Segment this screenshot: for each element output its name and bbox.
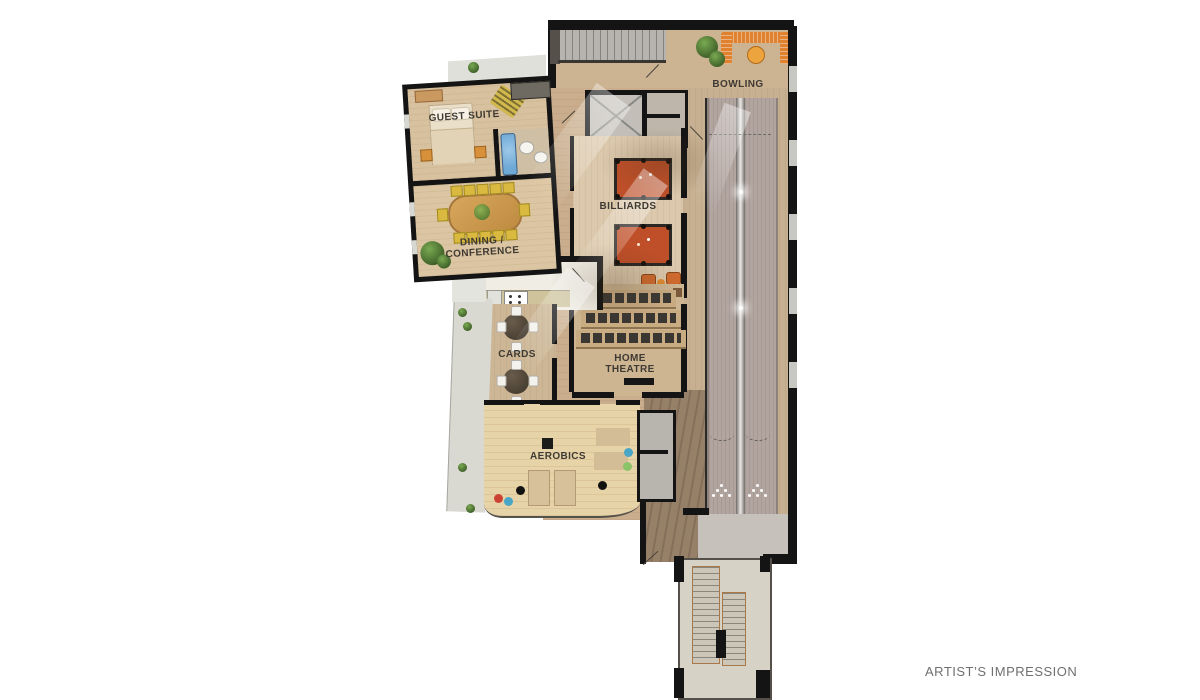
artists-impression-caption: ARTIST’S IMPRESSION <box>925 664 1077 679</box>
theatre-seat-row-3 <box>576 330 686 349</box>
billiards-wall-right-1 <box>681 128 687 198</box>
lane-walkway-divider <box>705 98 707 514</box>
bowling-pins-1 <box>720 484 723 487</box>
theatre-wall-left <box>569 296 574 392</box>
bathtub <box>500 133 518 176</box>
exercise-mat-3 <box>596 428 630 446</box>
balcony-plant-2 <box>463 322 472 331</box>
theatre-wall-bottom-1 <box>572 392 614 398</box>
kitchen-wall-right <box>597 256 603 310</box>
equipment-dot-1 <box>516 486 525 495</box>
exercise-ball-blue-1 <box>624 448 633 457</box>
aerobics-wall-top-2 <box>540 400 600 405</box>
wardrobe <box>510 81 551 100</box>
bowling-pins-2 <box>756 484 759 487</box>
window-right-4 <box>789 288 797 314</box>
exercise-ball-green <box>623 462 632 471</box>
room-label-theatre-line2: THEATRE <box>605 364 654 376</box>
billiard-table-1 <box>614 158 672 200</box>
cards-wall-right-1 <box>552 304 557 344</box>
card-chair <box>497 322 507 333</box>
window-right-2 <box>789 140 797 166</box>
dining-chair <box>505 229 518 241</box>
lane-light-2 <box>739 306 743 310</box>
lane-light-1 <box>739 190 743 194</box>
equipment-box <box>542 438 553 449</box>
window-left-2 <box>409 202 415 216</box>
theatre-seat-row-2 <box>581 310 681 329</box>
card-table-1 <box>503 314 529 340</box>
exercise-ball-blue-2 <box>504 497 513 506</box>
nightstand-left <box>420 149 433 162</box>
balcony-plant-4 <box>466 504 475 513</box>
billiard-table-2 <box>614 224 672 266</box>
corridor-wall-left <box>640 496 646 564</box>
terrace-plant <box>468 62 479 73</box>
room-label-bowling: BOWLING <box>712 79 763 91</box>
exercise-mat-2 <box>554 470 576 506</box>
dining-chair <box>463 184 476 196</box>
lane-range-arc-1 <box>710 428 734 441</box>
window-right-5 <box>789 362 797 388</box>
card-chair <box>511 360 522 370</box>
dining-chair <box>476 184 489 196</box>
utility-divider <box>639 450 668 454</box>
outer-wall-top <box>548 20 794 30</box>
elevator <box>585 90 647 142</box>
tower-corner-3 <box>756 670 770 698</box>
card-chair <box>529 376 539 387</box>
staircase <box>558 30 666 62</box>
floor-plan: GUEST SUITE DINING / CONFERENCE BOWLING … <box>400 8 800 700</box>
equipment-dot-2 <box>598 481 607 490</box>
dining-chair <box>519 203 531 217</box>
room-label-billiards: BILLIARDS <box>600 201 657 213</box>
aerobics-wall-top-1 <box>484 400 524 405</box>
tower-corner-1 <box>674 556 684 582</box>
service-room-divider <box>646 114 680 118</box>
outer-wall-step <box>683 508 709 515</box>
blanket <box>431 127 475 164</box>
cards-wall-right-2 <box>552 358 557 402</box>
lane-foul-line <box>709 134 771 135</box>
utility-rooms <box>637 410 676 502</box>
balcony-plant-1 <box>458 308 467 317</box>
theatre-wall-bottom-2 <box>642 392 684 398</box>
balcony-plant-3 <box>458 463 467 472</box>
cafe-table <box>747 46 765 64</box>
guest-wing: GUEST SUITE DINING / CONFERENCE <box>402 76 562 283</box>
plant-bowling-2 <box>709 51 725 67</box>
window-left-1 <box>404 114 410 128</box>
room-label-aerobics: AEROBICS <box>530 451 586 463</box>
cinema-screen <box>624 378 654 385</box>
dining-chair <box>437 208 449 222</box>
dining-chair <box>450 185 463 197</box>
tower-corner-2 <box>674 668 684 698</box>
tower-center-wall <box>716 630 726 658</box>
window-right-3 <box>789 214 797 240</box>
dresser <box>414 89 443 103</box>
card-chair <box>497 376 507 387</box>
exercise-mat-1 <box>528 470 550 506</box>
stair-landing <box>550 30 560 64</box>
lane-range-arc-2 <box>746 428 770 441</box>
window-right-1 <box>789 66 797 92</box>
card-chair <box>511 306 522 316</box>
page: { "caption": "ARTIST’S IMPRESSION", "flo… <box>0 0 1200 700</box>
card-chair <box>529 322 539 333</box>
tower-corner-4 <box>760 556 770 572</box>
billiards-wall-left-1 <box>570 136 574 191</box>
stair-edge <box>558 60 666 63</box>
window-left-3 <box>412 240 418 254</box>
exercise-ball-red <box>494 494 503 503</box>
card-table-2 <box>503 368 529 394</box>
dining-chair <box>502 182 515 194</box>
aerobics-wall-top-3 <box>616 400 640 405</box>
nightstand-right <box>474 146 487 159</box>
dining-chair <box>489 183 502 195</box>
room-label-cards: CARDS <box>498 349 536 361</box>
